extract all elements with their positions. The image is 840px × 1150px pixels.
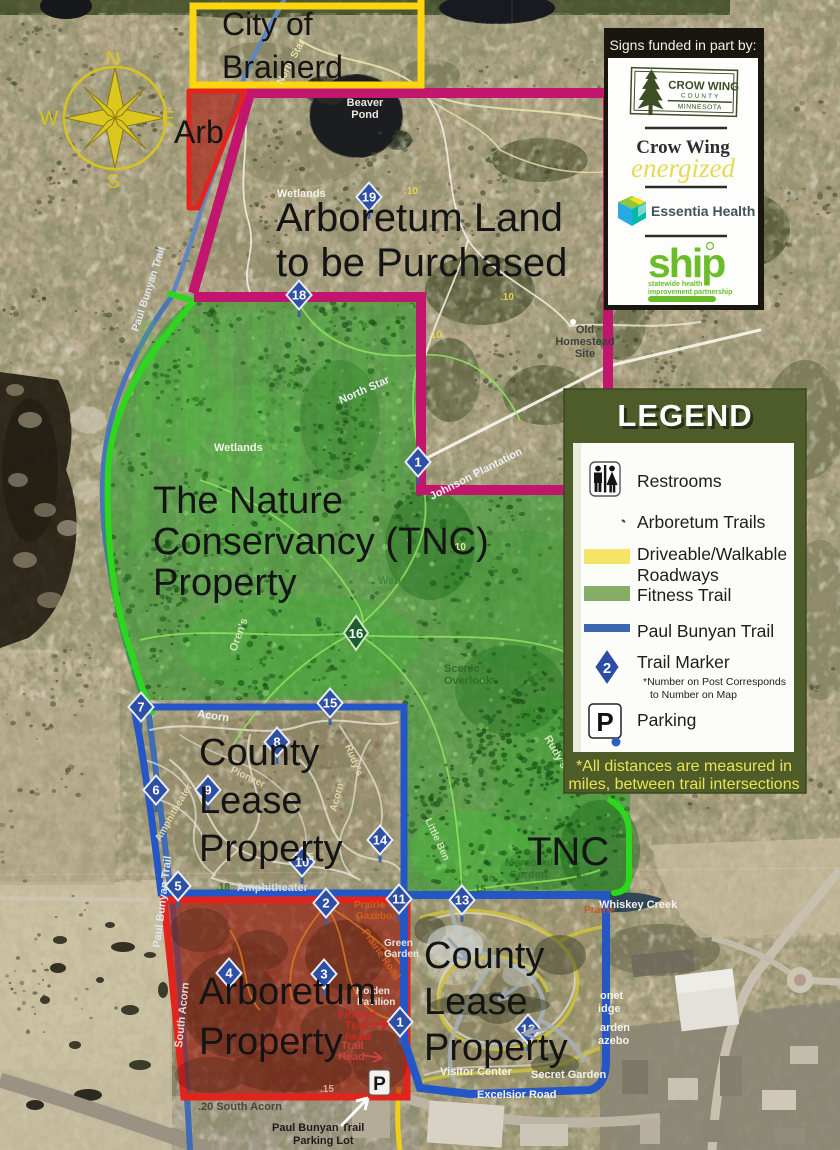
svg-text:energized: energized xyxy=(631,153,735,183)
svg-text:P: P xyxy=(596,707,613,737)
svg-text:MINNESOTA: MINNESOTA xyxy=(678,103,723,111)
svg-text:Secret Garden: Secret Garden xyxy=(531,1069,606,1081)
svg-text:E: E xyxy=(161,108,174,130)
svg-text:Roadways: Roadways xyxy=(637,565,719,585)
svg-text:Property: Property xyxy=(199,1021,343,1063)
svg-text:7: 7 xyxy=(137,700,144,715)
svg-text:miles, between trail intersect: miles, between trail intersections xyxy=(568,776,799,793)
svg-text:arden: arden xyxy=(600,1022,630,1034)
svg-text:18: 18 xyxy=(292,288,306,303)
svg-text:5: 5 xyxy=(174,879,181,894)
svg-text:.15: .15 xyxy=(472,884,486,895)
svg-text:Prairie: Prairie xyxy=(584,905,616,916)
svg-text:.10: .10 xyxy=(500,292,514,303)
svg-text:County: County xyxy=(199,732,319,774)
svg-text:Signs funded in part by:: Signs funded in part by: xyxy=(609,37,756,53)
svg-text:CROW WING: CROW WING xyxy=(668,80,739,94)
svg-text:Arboretum: Arboretum xyxy=(199,971,376,1013)
svg-text:Trail Marker: Trail Marker xyxy=(637,652,730,672)
svg-text:W: W xyxy=(40,108,59,130)
svg-text:1: 1 xyxy=(396,1015,403,1030)
svg-text:Homestead: Homestead xyxy=(555,336,614,348)
svg-text:improvement partnership: improvement partnership xyxy=(648,289,732,296)
svg-text:6: 6 xyxy=(152,783,159,798)
svg-text:Paul Bunyan Trail: Paul Bunyan Trail xyxy=(272,1122,364,1134)
svg-text:COUNTY: COUNTY xyxy=(681,92,721,100)
svg-text:Pond: Pond xyxy=(351,109,379,121)
svg-text:Overlook: Overlook xyxy=(444,675,493,687)
svg-text:Excelsior Road: Excelsior Road xyxy=(477,1089,556,1101)
svg-text:Paul Bunyan Trail: Paul Bunyan Trail xyxy=(637,621,774,641)
svg-text:Old: Old xyxy=(576,324,594,336)
svg-text:Restrooms: Restrooms xyxy=(637,471,722,491)
svg-text:*Number on Post Corresponds: *Number on Post Corresponds xyxy=(643,676,786,688)
svg-text:2: 2 xyxy=(603,660,611,677)
svg-text:14: 14 xyxy=(373,833,388,848)
svg-text:Amphitheater: Amphitheater xyxy=(237,882,309,894)
svg-text:15: 15 xyxy=(323,696,337,711)
svg-text:16: 16 xyxy=(349,626,363,641)
svg-text:azebo: azebo xyxy=(598,1035,629,1047)
svg-text:.20 South Acorn: .20 South Acorn xyxy=(198,1101,282,1113)
svg-text:*All distances are measured in: *All distances are measured in xyxy=(576,758,792,775)
svg-text:P: P xyxy=(373,1074,386,1095)
svg-text:Parking Lot: Parking Lot xyxy=(293,1135,354,1147)
svg-text:The Nature: The Nature xyxy=(153,480,343,522)
svg-text:Parking: Parking xyxy=(637,710,696,730)
svg-text:Prairie: Prairie xyxy=(354,900,386,911)
svg-text:Wetlands: Wetlands xyxy=(214,442,263,454)
svg-text:11: 11 xyxy=(392,892,406,907)
svg-text:Wetlands: Wetlands xyxy=(378,575,427,587)
svg-text:2: 2 xyxy=(322,896,329,911)
svg-text:Essentia Health: Essentia Health xyxy=(651,203,755,219)
svg-text:Property: Property xyxy=(153,562,297,604)
svg-text:Scenic: Scenic xyxy=(444,663,479,675)
svg-text:Conservancy (TNC): Conservancy (TNC) xyxy=(153,521,489,563)
svg-text:Garden: Garden xyxy=(384,949,419,960)
svg-text:1: 1 xyxy=(414,455,421,470)
svg-text:Property: Property xyxy=(199,828,343,870)
svg-text:Arboretum Land: Arboretum Land xyxy=(276,196,563,240)
svg-text:onet: onet xyxy=(600,990,624,1002)
svg-text:.15: .15 xyxy=(320,1084,334,1095)
svg-text:TNC: TNC xyxy=(527,830,609,874)
svg-text:N: N xyxy=(106,48,120,70)
svg-text:County: County xyxy=(424,935,544,977)
svg-text:City of: City of xyxy=(222,6,313,42)
svg-text:to be Purchased: to be Purchased xyxy=(276,241,567,285)
svg-text:Site: Site xyxy=(575,348,595,360)
svg-text:Property: Property xyxy=(424,1027,568,1069)
svg-text:Brainerd: Brainerd xyxy=(222,49,343,85)
svg-text:S: S xyxy=(106,171,119,193)
svg-text:to Number on Map: to Number on Map xyxy=(650,689,737,701)
svg-text:Fitness Trail: Fitness Trail xyxy=(637,585,731,605)
svg-text:Arboretum Trails: Arboretum Trails xyxy=(637,512,766,532)
svg-text:Driveable/Walkable: Driveable/Walkable xyxy=(637,544,787,564)
svg-text:Gazebo: Gazebo xyxy=(356,911,392,922)
svg-text:idge: idge xyxy=(598,1003,621,1015)
svg-text:Lease: Lease xyxy=(424,981,528,1023)
svg-text:Lease: Lease xyxy=(199,780,303,822)
svg-text:.18: .18 xyxy=(216,882,230,893)
svg-text:Green: Green xyxy=(384,938,413,949)
svg-text:LEGEND: LEGEND xyxy=(617,398,752,433)
svg-text:statewide health: statewide health xyxy=(648,281,702,288)
svg-text:Arb: Arb xyxy=(174,114,224,150)
svg-text:13: 13 xyxy=(455,893,469,908)
svg-text:.10: .10 xyxy=(428,330,442,341)
svg-text:Beaver: Beaver xyxy=(347,97,384,109)
